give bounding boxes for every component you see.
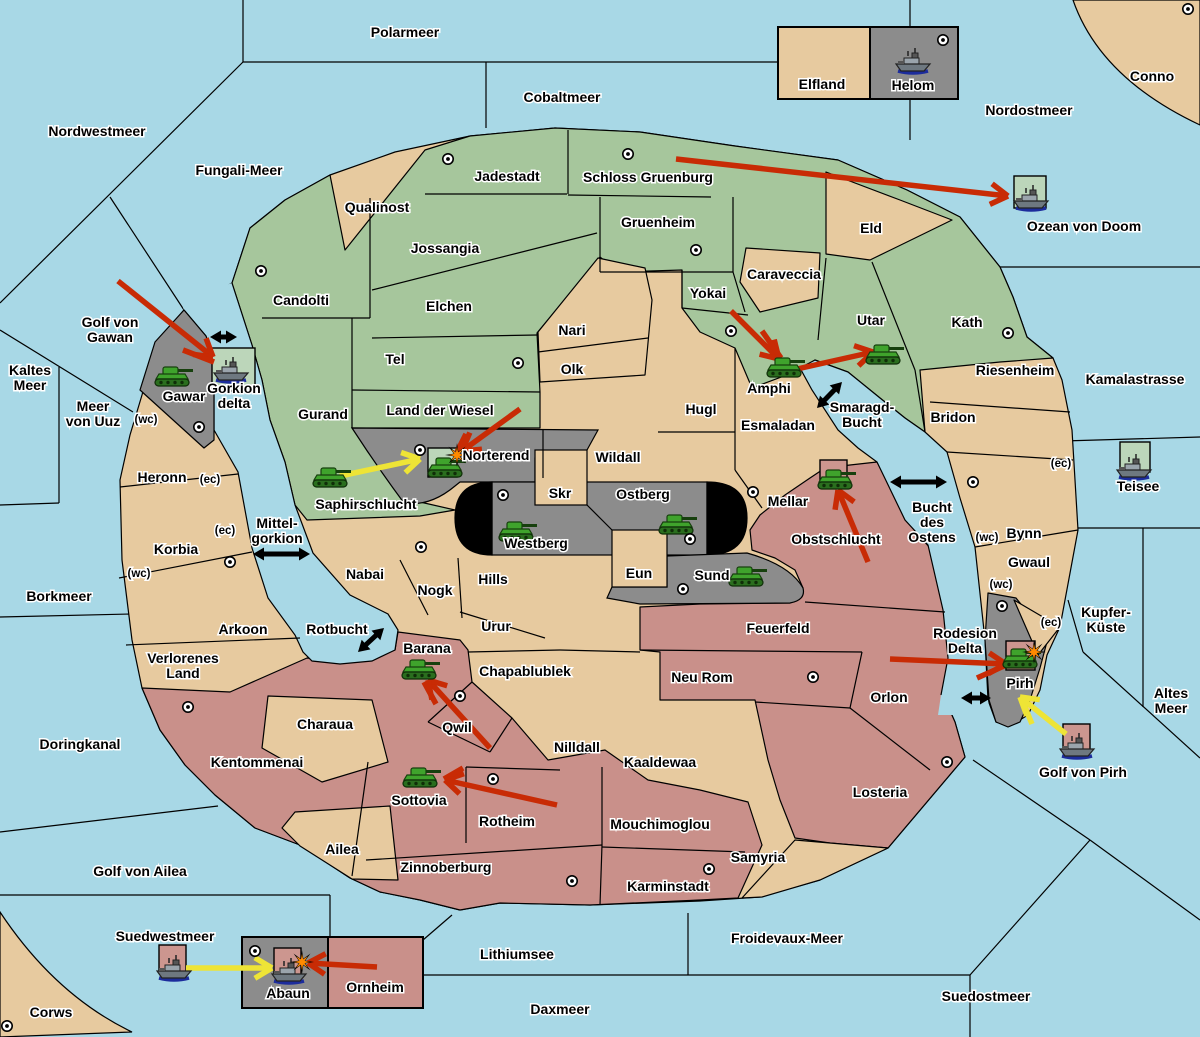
tank-icon [413,674,416,677]
coast-marker-wc: (wc) [976,532,999,544]
territory-label-ostberg[interactable]: Ostberg [616,486,670,502]
game-map[interactable]: PolarmeerNordwestmeerCobaltmeerNordostme… [0,0,1200,1037]
territory-label-eun[interactable]: Eun [626,565,652,581]
territory-label-wildall-line: Wildall [596,449,641,465]
territory-label-esmaladan-line: Esmaladan [741,417,815,433]
territory-label-rotheim[interactable]: Rotheim [479,813,535,829]
tank-icon [684,529,687,532]
sea-label-mittelgorkion-line: Mittel- [256,515,298,531]
tank-icon [404,775,436,780]
city-marker [681,587,685,591]
coast-marker-ec-line: (ec) [215,525,236,537]
tank-icon [660,522,692,527]
territory-label-ailea[interactable]: Ailea [325,841,359,857]
tank-icon [166,381,169,384]
sea-label-cobaltmeer[interactable]: Cobaltmeer [523,89,601,105]
sea-label-golf-von-pirh[interactable]: Golf von Pirh [1039,764,1127,780]
sea-label-doringkanal-line: Doringkanal [40,736,121,752]
territory-label-pirh-line: Pirh [1006,675,1033,691]
sea-label-suedwestmeer[interactable]: Suedwestmeer [116,928,215,944]
tank-icon [670,529,673,532]
ship-icon [272,974,306,981]
territory-label-bridon-line: Bridon [930,409,975,425]
sea-label-altes-meer[interactable]: AltesMeer [1154,685,1188,716]
territory-label-schloss-gruenburg-line: Schloss Gruenburg [583,169,713,185]
city-marker [694,248,698,252]
territory-label-utar[interactable]: Utar [857,312,886,328]
sea-label-fungali-meer-line: Fungali-Meer [195,162,283,178]
territory-label-tel-line: Tel [385,351,404,367]
territory-label-schloss-gruenburg[interactable]: Schloss Gruenburg [583,169,713,185]
coast-marker-ec-line: (ec) [1041,617,1062,629]
sea-label-daxmeer[interactable]: Daxmeer [530,1001,590,1017]
territory-label-olk[interactable]: Olk [561,361,584,377]
territory-label-nabai[interactable]: Nabai [346,566,384,582]
city-marker [419,545,423,549]
territory-label-obstschlucht-line: Obstschlucht [791,531,881,547]
sea-label-suedostmeer[interactable]: Suedostmeer [942,988,1031,1004]
tank-icon [180,381,183,384]
tank-icon [159,381,162,384]
sea-label-polarmeer[interactable]: Polarmeer [371,24,440,40]
tank-icon [819,477,851,482]
sea-label-froidevaux-meer-line: Froidevaux-Meer [731,930,844,946]
territory-label-urur-line: Urur [481,618,511,634]
territory-label-samyria-line: Samyria [731,849,786,865]
territory-label-olk-line: Olk [561,361,584,377]
sea-label-doringkanal[interactable]: Doringkanal [40,736,121,752]
territory-label-norterend[interactable]: Norterend [463,447,530,463]
territory-label-barana[interactable]: Barana [403,640,451,656]
sea-label-rotbucht[interactable]: Rotbucht [306,621,368,637]
tank-icon [836,484,839,487]
territory-label-ailea-line: Ailea [325,841,359,857]
tank-icon [173,381,176,384]
coast-marker-ec-line: (ec) [1051,458,1072,470]
territory-label-helom-line: Helom [892,77,935,93]
ship-icon [1060,749,1094,756]
territory-label-samyria[interactable]: Samyria [731,849,786,865]
sea-label-nordwestmeer[interactable]: Nordwestmeer [48,123,146,139]
sea-label-altes-meer-line: Meer [1155,700,1188,716]
city-marker [1000,604,1004,608]
territory-label-mellar-line: Mellar [768,493,809,509]
territory-label-rotheim-line: Rotheim [479,813,535,829]
territory-label-gruenheim-line: Gruenheim [621,214,695,230]
tank-icon [1014,663,1017,666]
sea-label-kamalastrasse-line: Kamalastrasse [1086,371,1185,387]
territory-label-rodesion-delta-line: Rodesion [933,625,997,641]
ship-icon [1014,201,1048,208]
territory-label-qwil[interactable]: Qwil [442,719,472,735]
territory-label-chapablublek[interactable]: Chapablublek [479,663,571,679]
sea-label-conno[interactable]: Conno [1130,68,1174,84]
territory-label-verlorenes-land-line: Land [166,665,199,681]
territory-label-gruenheim[interactable]: Gruenheim [621,214,695,230]
territory-label-gwaul-line: Gwaul [1008,554,1050,570]
territory-label-amphi[interactable]: Amphi [747,380,791,396]
territory-label-arkoon-line: Arkoon [219,621,268,637]
territory-label-candolti[interactable]: Candolti [273,292,329,308]
sea-label-golf-von-pirh-line: Golf von Pirh [1039,764,1127,780]
tank-icon [754,581,757,584]
sea-label-kupfer-k-ste-line: Kupfer- [1081,604,1131,620]
territory-label-nabai-line: Nabai [346,566,384,582]
territory-label-tel[interactable]: Tel [385,351,404,367]
tank-icon [829,484,832,487]
territory-label-ornheim-line: Ornheim [346,979,404,995]
tank-icon [663,529,666,532]
territory-label-gawar[interactable]: Gawar [163,388,206,404]
city-marker [197,425,201,429]
territory-label-rodesion-delta-line: Delta [948,640,982,656]
tank-icon [682,517,697,520]
tank-icon [428,782,431,785]
city-marker [1006,331,1010,335]
territory-label-neu-rom[interactable]: Neu Rom [671,669,732,685]
city-marker [941,38,945,42]
tank-icon [336,470,351,473]
territory-label-westberg[interactable]: Westberg [504,535,568,551]
territory-label-hugl-line: Hugl [685,401,716,417]
territory-label-nari-line: Nari [558,322,585,338]
territory-label-sottovia-line: Sottovia [391,792,446,808]
sea-label-kamalastrasse[interactable]: Kamalastrasse [1086,371,1185,387]
tank-icon [841,472,856,475]
territory-label-nogk-line: Nogk [418,582,453,598]
territory-label-obstschlucht[interactable]: Obstschlucht [791,531,881,547]
sea-label-ozean-von-doom[interactable]: Ozean von Doom [1027,218,1141,234]
map-canvas[interactable]: PolarmeerNordwestmeerCobaltmeerNordostme… [0,0,1200,1037]
sea-label-fungali-meer[interactable]: Fungali-Meer [195,162,283,178]
tank-icon [522,524,537,527]
territory-label-nogk[interactable]: Nogk [418,582,453,598]
tank-icon [822,484,825,487]
city-marker [626,152,630,156]
sea-label-rotbucht-line: Rotbucht [306,621,368,637]
territory-label-feuerfeld-line: Feuerfeld [746,620,809,636]
coast-marker-ec-line: (ec) [200,474,221,486]
sea-label-kupfer-k-ste[interactable]: Kupfer-Küste [1081,604,1131,635]
ship-icon [214,373,248,380]
territory-label-eld[interactable]: Eld [860,220,882,236]
territory-label-neu-rom-line: Neu Rom [671,669,732,685]
ship-icon [159,968,165,971]
territory-label-arkoon[interactable]: Arkoon [219,621,268,637]
territory-label-utar-line: Utar [857,312,886,328]
territory-label-kath-line: Kath [951,314,982,330]
tank-icon [843,484,846,487]
territory-label-yokai[interactable]: Yokai [690,285,726,301]
territory-label-land-der-wiesel-line: Land der Wiesel [386,402,493,418]
territory-label-bynn-line: Bynn [1007,525,1042,541]
coast-marker-wc: (wc) [135,414,158,426]
coast-marker-wc: (wc) [128,568,151,580]
city-marker [570,879,574,883]
territory-label-gorkion-delta-line: delta [218,395,251,411]
tank-icon [1028,663,1031,666]
tank-icon [891,359,894,362]
sea-label-teisee-line: Teisee [1117,478,1160,494]
sea-label-suedostmeer-line: Suedostmeer [942,988,1031,1004]
tank-icon [1007,663,1010,666]
territory-label-saphirschlucht[interactable]: Saphirschlucht [315,496,416,512]
territory-label-urur[interactable]: Urur [481,618,511,634]
coast-marker-wc-line: (wc) [135,414,158,426]
city-marker [259,269,263,273]
territory-label-caraveccia-line: Caraveccia [747,266,821,282]
territory-label-gorkion-delta-line: Gorkion [207,380,261,396]
sea-label-meer-von-uuz-line: Meer [77,398,110,414]
territory-label-riesenheim[interactable]: Riesenheim [976,362,1055,378]
territory-label-sottovia[interactable]: Sottovia [391,792,446,808]
sea-label-suedwestmeer-line: Suedwestmeer [116,928,215,944]
territory-label-ostberg-line: Ostberg [616,486,670,502]
sea-label-bucht-des-ostens-line: Bucht [912,499,952,515]
territory-label-pirh[interactable]: Pirh [1006,675,1033,691]
city-marker [186,705,190,709]
city-marker [945,760,949,764]
territory-label-qualinost[interactable]: Qualinost [345,199,410,215]
sea-label-golf-von-ailea-line: Golf von Ailea [93,863,187,879]
territory-label-heronn-line: Heronn [138,469,187,485]
ship-icon [222,367,237,373]
sea-label-borkmeer[interactable]: Borkmeer [26,588,92,604]
coast-marker-wc: (wc) [990,579,1013,591]
coast-marker-ec: (ec) [200,474,221,486]
territory-label-land-der-wiesel[interactable]: Land der Wiesel [386,402,493,418]
territory-label-saphirschlucht-line: Saphirschlucht [315,496,416,512]
city-marker [811,675,815,679]
territory-label-losteria-line: Losteria [853,784,908,800]
box-ornheim[interactable] [328,937,423,1008]
territory-label-hugl[interactable]: Hugl [685,401,716,417]
sea-label-polarmeer-line: Polarmeer [371,24,440,40]
tank-icon [877,359,880,362]
territory-label-sund-line: Sund [695,567,730,583]
territory-label-elchen-line: Elchen [426,298,472,314]
coast-marker-ec: (ec) [1051,458,1072,470]
tank-icon [500,529,532,534]
territory-label-caraveccia[interactable]: Caraveccia [747,266,821,282]
tank-icon [421,782,424,785]
city-marker [228,560,232,564]
sea-label-kupfer-k-ste-line: Küste [1087,619,1126,635]
coast-marker-wc-line: (wc) [990,579,1013,591]
territory-label-norterend-line: Norterend [463,447,530,463]
tank-icon [867,352,899,357]
territory-label-wildall[interactable]: Wildall [596,449,641,465]
city-marker [491,777,495,781]
sea-label-nordwestmeer-line: Nordwestmeer [48,123,146,139]
sea-label-froidevaux-meer[interactable]: Froidevaux-Meer [731,930,844,946]
territory-label-riesenheim-line: Riesenheim [976,362,1055,378]
sea-label-ozean-von-doom-line: Ozean von Doom [1027,218,1141,234]
ship-icon [1117,470,1151,477]
city-marker [253,949,257,953]
territory-label-elchen[interactable]: Elchen [426,298,472,314]
territory-label-charaua[interactable]: Charaua [297,716,353,732]
territory-label-ornheim[interactable]: Ornheim [346,979,404,995]
sea-label-smaragd-bucht-line: Smaragd- [830,399,895,415]
tank-icon [156,374,188,379]
ship-icon [1022,195,1037,201]
territory-label-esmaladan[interactable]: Esmaladan [741,417,815,433]
tank-icon [792,372,795,375]
sea-label-mittelgorkion-line: gorkion [251,530,302,546]
coast-marker-wc-line: (wc) [976,532,999,544]
tank-icon [407,782,410,785]
sea-label-kaltes-meer[interactable]: KaltesMeer [9,362,51,393]
city-marker [729,329,733,333]
tank-icon [439,472,442,475]
territory-label-kentommenai[interactable]: Kentommenai [211,754,304,770]
territory-label-hills[interactable]: Hills [478,571,508,587]
territory-label-zinnoberburg-line: Zinnoberburg [401,859,492,875]
tank-icon [420,674,423,677]
ship-icon [904,58,919,64]
territory-label-gwaul[interactable]: Gwaul [1008,554,1050,570]
territory-label-helom[interactable]: Helom [892,77,935,93]
territory-label-westberg-line: Westberg [504,535,568,551]
tank-icon [677,529,680,532]
ship-icon [1119,467,1125,470]
tank-icon [730,574,762,579]
territory-label-nilldall-line: Nilldall [554,739,600,755]
territory-label-abaun-line: Abaun [266,985,310,1001]
tank-icon [733,581,736,584]
territory-label-jadestadt[interactable]: Jadestadt [474,168,540,184]
sea-label-golf-von-gawan[interactable]: Golf vonGawan [82,314,139,345]
ship-icon [898,61,904,64]
city-marker [501,493,505,497]
explosion-icon [294,954,310,970]
tank-icon [406,674,409,677]
territory-label-feuerfeld[interactable]: Feuerfeld [746,620,809,636]
sea-label-kaltes-meer-line: Meer [14,377,47,393]
territory-label-sund[interactable]: Sund [695,567,730,583]
territory-label-nilldall[interactable]: Nilldall [554,739,600,755]
territory-label-jossangia-line: Jossangia [411,240,480,256]
tank-icon [778,372,781,375]
tank-icon [314,475,346,480]
territory-label-kath[interactable]: Kath [951,314,982,330]
tank-icon [403,667,435,672]
tank-icon [752,569,767,572]
attack-arrow-red-head [835,490,838,510]
territory-label-mouchimoglou-line: Mouchimoglou [610,816,710,832]
territory-label-karminstadt-line: Karminstadt [627,878,709,894]
territory-label-barana-line: Barana [403,640,451,656]
territory-label-mouchimoglou[interactable]: Mouchimoglou [610,816,710,832]
territory-label-korbia[interactable]: Korbia [154,541,199,557]
city-marker [458,694,462,698]
ship-icon [280,968,295,974]
territory-label-gawar-line: Gawar [163,388,206,404]
ship-icon [896,64,930,71]
tank-icon [790,360,805,363]
tank-icon [740,581,743,584]
tank-icon [785,372,788,375]
tank-icon [432,472,435,475]
territory-label-nari[interactable]: Nari [558,322,585,338]
ship-icon [1016,198,1022,201]
territory-label-jadestadt-line: Jadestadt [474,168,540,184]
territory-label-orlon-line: Orlon [870,689,907,705]
territory-label-kaaldewaa-line: Kaaldewaa [624,754,697,770]
ship-icon [1125,464,1140,470]
city-marker [418,448,422,452]
tank-icon [429,465,461,470]
territory-label-charaua-line: Charaua [297,716,353,732]
sea-label-conno-line: Conno [1130,68,1174,84]
territory-label-mellar[interactable]: Mellar [768,493,809,509]
territory-label-abaun[interactable]: Abaun [266,985,310,1001]
ship-icon [165,965,180,971]
territory-label-qwil-line: Qwil [442,719,472,735]
territory-label-jossangia[interactable]: Jossangia [411,240,480,256]
sea-label-smaragd-bucht-line: Bucht [842,414,882,430]
coast-marker-ec: (ec) [1041,617,1062,629]
tank-icon [427,674,430,677]
territory-label-karminstadt[interactable]: Karminstadt [627,878,709,894]
ship-icon [1062,746,1068,749]
ship-icon [216,370,222,373]
sea-label-golf-von-gawan-line: Gawan [87,329,133,345]
tank-icon [317,482,320,485]
territory-label-gurand-line: Gurand [298,406,348,422]
tank-icon [1004,656,1036,661]
tank-icon [324,482,327,485]
tank-icon [889,347,904,350]
territory-label-bridon[interactable]: Bridon [930,409,975,425]
territory-label-heronn[interactable]: Heronn [138,469,187,485]
ship-icon [274,971,280,974]
sea-label-mittelgorkion[interactable]: Mittel-gorkion [251,515,302,546]
tank-icon [768,365,800,370]
city-marker [707,867,711,871]
ship-icon [157,971,191,978]
city-marker [751,490,755,494]
territory-label-orlon[interactable]: Orlon [870,689,907,705]
sea-label-lithiumsee[interactable]: Lithiumsee [480,946,554,962]
sea-label-golf-von-ailea[interactable]: Golf von Ailea [93,863,187,879]
territory-label-gurand[interactable]: Gurand [298,406,348,422]
territory-label-kentommenai-line: Kentommenai [211,754,304,770]
tank-icon [426,770,441,773]
territory-label-amphi-line: Amphi [747,380,791,396]
territory-label-kaaldewaa[interactable]: Kaaldewaa [624,754,697,770]
territory-label-losteria[interactable]: Losteria [853,784,908,800]
territory-label-zinnoberburg[interactable]: Zinnoberburg [401,859,492,875]
sea-label-daxmeer-line: Daxmeer [530,1001,590,1017]
tank-icon [414,782,417,785]
city-marker [1186,7,1190,11]
tank-icon [884,359,887,362]
sea-label-corws[interactable]: Corws [30,1004,73,1020]
sea-label-nordostmeer[interactable]: Nordostmeer [985,102,1073,118]
tank-icon [446,472,449,475]
tank-icon [453,472,456,475]
tank-icon [338,482,341,485]
territory-label-elfland[interactable]: Elfland [799,76,846,92]
territory-label-elfland-line: Elfland [799,76,846,92]
territory-label-skr[interactable]: Skr [549,485,572,501]
territory-label-bynn[interactable]: Bynn [1007,525,1042,541]
sea-label-teisee[interactable]: Teisee [1117,478,1160,494]
coast-marker-ec: (ec) [215,525,236,537]
territory-label-chapablublek-line: Chapablublek [479,663,571,679]
